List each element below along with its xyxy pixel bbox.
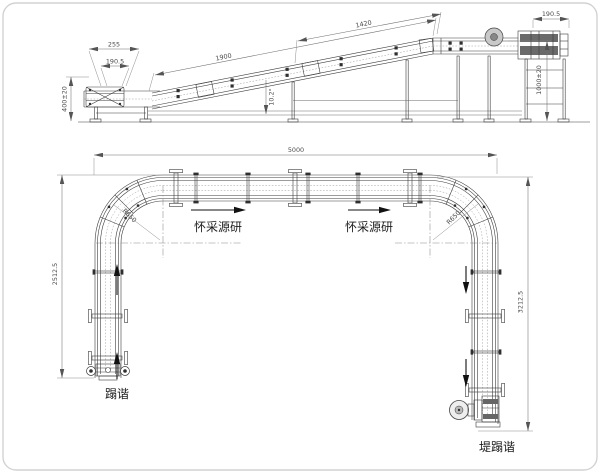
- dim-text-tail-belt-width: 190.5: [106, 58, 124, 66]
- dim-text-overall-length: 5000: [288, 146, 304, 154]
- dim-text-left-run: 2512.5: [51, 263, 59, 285]
- drawing-canvas: 255 190.5 400±20 1900 1420 10.2°: [0, 0, 600, 473]
- dim-text-infeed-height: 400±20: [61, 86, 69, 112]
- conveyor-drawing: 255 190.5 400±20 1900 1420 10.2°: [0, 0, 600, 473]
- infeed-label: 蹋谐: [105, 387, 129, 401]
- dim-text-discharge-height: 1000±20: [535, 65, 543, 95]
- dim-text-head-width: 190.5: [542, 10, 560, 18]
- dim-text-incline-angle: 10.2°: [268, 88, 276, 105]
- dim-text-tail-width: 255: [108, 41, 120, 49]
- page-border: [3, 3, 597, 470]
- dim-text-right-run: 3212.5: [517, 291, 525, 313]
- discharge-label: 堤蹋谐: [479, 440, 515, 454]
- flow-label-right: 怀采源研: [345, 220, 393, 234]
- flow-label-left: 怀采源研: [194, 220, 242, 234]
